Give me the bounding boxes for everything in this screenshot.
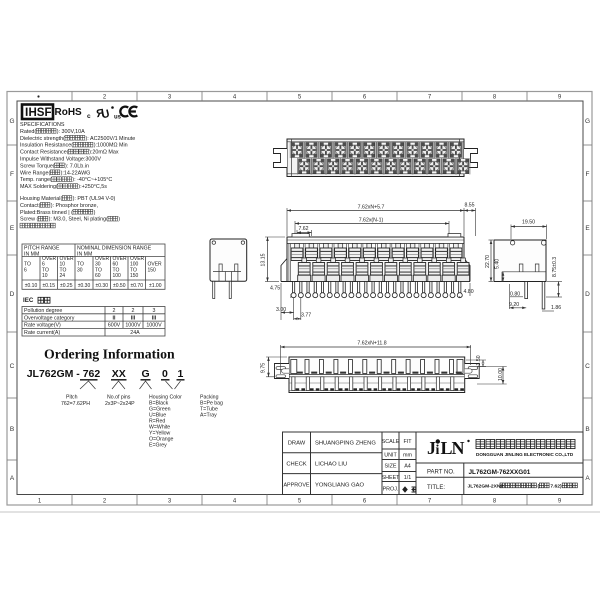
svg-text:SIZE: SIZE — [385, 464, 397, 470]
svg-text:LICHAO LIU: LICHAO LIU — [315, 462, 347, 468]
svg-text:7.62): 7.62) — [550, 484, 562, 490]
svg-text:B: B — [10, 426, 14, 433]
svg-text:Screw (: Screw ( — [20, 217, 38, 223]
svg-text:Ordering Information: Ordering Information — [44, 347, 175, 362]
svg-text:2x3P~2x24P: 2x3P~2x24P — [105, 401, 135, 407]
svg-text:9.75: 9.75 — [261, 363, 267, 373]
svg-text:HSF: HSF — [29, 107, 52, 119]
svg-text:Dielectric strength(: Dielectric strength( — [20, 136, 65, 142]
svg-text:RoHS: RoHS — [55, 107, 83, 118]
svg-text:1/1: 1/1 — [404, 475, 412, 481]
svg-text:A=Tray: A=Tray — [200, 413, 217, 419]
svg-text:1000V: 1000V — [125, 323, 141, 329]
svg-text:9.20: 9.20 — [509, 302, 519, 308]
svg-text:Insulation Resistance(: Insulation Resistance( — [20, 143, 73, 149]
svg-text:CHECK: CHECK — [286, 462, 306, 468]
svg-text:1000V: 1000V — [146, 323, 162, 329]
svg-text:0: 0 — [162, 368, 168, 380]
svg-text:60: 60 — [95, 273, 101, 279]
svg-text:24A: 24A — [130, 330, 140, 336]
svg-text:):14-22AWG: ):14-22AWG — [61, 170, 91, 176]
svg-text:TITLE:: TITLE: — [427, 485, 445, 491]
svg-text:Contact(: Contact( — [20, 203, 41, 209]
svg-text:100: 100 — [113, 273, 122, 279]
svg-text:): M3.0, Steel, Ni plating(: ): M3.0, Steel, Ni plating( — [49, 217, 109, 223]
svg-text:10.00: 10.00 — [498, 368, 504, 381]
svg-text:F: F — [10, 171, 14, 178]
svg-text:SHUANGPING ZHENG: SHUANGPING ZHENG — [315, 441, 376, 447]
svg-text:150: 150 — [130, 273, 139, 279]
svg-text:E: E — [10, 225, 15, 232]
svg-text:±0.50: ±0.50 — [113, 283, 126, 289]
svg-text:Housing Material(: Housing Material( — [20, 196, 62, 202]
svg-text:II: II — [113, 315, 116, 321]
svg-text:Temp. range(: Temp. range( — [20, 177, 52, 183]
svg-text:SCALE: SCALE — [382, 439, 400, 445]
svg-text:±0.70: ±0.70 — [131, 283, 144, 289]
svg-text:SPECIFICATIONS: SPECIFICATIONS — [20, 122, 65, 128]
svg-text:C: C — [585, 363, 590, 370]
svg-text:): -40°C~+105°C: ): -40°C~+105°C — [72, 177, 112, 183]
svg-text:±0.30: ±0.30 — [78, 283, 91, 289]
svg-text:1.86: 1.86 — [551, 305, 561, 311]
svg-text:Overvoltage category: Overvoltage category — [24, 315, 75, 321]
svg-text:N: N — [452, 438, 465, 458]
svg-text:13.15: 13.15 — [261, 253, 267, 266]
svg-text:B: B — [585, 426, 589, 433]
svg-text:6: 6 — [24, 267, 27, 273]
svg-text:Rate current(A): Rate current(A) — [24, 330, 60, 336]
svg-text:7.62x(N-1): 7.62x(N-1) — [359, 218, 384, 224]
svg-text:Screw Torque(: Screw Torque( — [20, 163, 55, 169]
svg-text:7.62: 7.62 — [298, 226, 308, 232]
svg-text:±1.00: ±1.00 — [149, 283, 162, 289]
svg-text:Contact Resistance(: Contact Resistance( — [20, 150, 69, 156]
svg-text:): ) — [118, 217, 120, 223]
svg-text:10: 10 — [42, 273, 48, 279]
svg-text:4.75: 4.75 — [270, 286, 280, 292]
svg-text:JL762GM-2XNP: JL762GM-2XNP — [468, 484, 505, 490]
svg-text:A4: A4 — [404, 464, 411, 470]
svg-text:XX: XX — [112, 368, 126, 380]
svg-text:Rated(: Rated( — [20, 129, 36, 135]
svg-text:G: G — [9, 118, 14, 125]
svg-text:762=7.62PH: 762=7.62PH — [61, 401, 90, 407]
svg-text:19.50: 19.50 — [522, 220, 535, 226]
svg-text:2: 2 — [132, 308, 135, 314]
svg-text:Pollution degree: Pollution degree — [24, 308, 62, 314]
svg-text:IN MM: IN MM — [77, 252, 92, 258]
svg-text:):20mΩ Max: ):20mΩ Max — [89, 150, 119, 156]
svg-text:SHEET: SHEET — [382, 475, 401, 481]
svg-text:PART NO.: PART NO. — [427, 470, 455, 476]
svg-text:D: D — [585, 291, 590, 298]
svg-text:7.62xN+5.7: 7.62xN+5.7 — [358, 205, 385, 211]
svg-text:2: 2 — [113, 308, 116, 314]
svg-text:PROJ.: PROJ. — [383, 487, 399, 493]
svg-text:600V: 600V — [108, 323, 121, 329]
svg-text:±0.15: ±0.15 — [43, 283, 56, 289]
svg-text:Plated:Brass tinned | (: Plated:Brass tinned | ( — [20, 210, 73, 216]
svg-text:Impulse Withstand Voltage:3000: Impulse Withstand Voltage:3000V — [20, 157, 101, 163]
svg-text:):+250°C,5s: ):+250°C,5s — [78, 184, 107, 190]
svg-text:±0.10: ±0.10 — [25, 283, 38, 289]
svg-text:E=Grey: E=Grey — [149, 443, 167, 449]
svg-text:): PBT (UL94 V-0): ): PBT (UL94 V-0) — [73, 196, 116, 202]
svg-text:1: 1 — [178, 368, 184, 380]
svg-text:): AC2500V/1 Minute: ): AC2500V/1 Minute — [86, 136, 136, 142]
svg-text:Wire Range(: Wire Range( — [20, 170, 50, 176]
svg-text:7.62xN+11.8: 7.62xN+11.8 — [357, 341, 386, 347]
svg-text:FIT: FIT — [403, 439, 412, 445]
svg-text:DONGGUAN JINLING ELECTRONIC CO: DONGGUAN JINLING ELECTRONIC CO.,LTD — [476, 452, 574, 457]
svg-text:3.77: 3.77 — [301, 313, 311, 319]
svg-text:): ) — [94, 210, 96, 216]
svg-text:): 7.0Lb.in: ): 7.0Lb.in — [65, 163, 89, 169]
svg-text:III: III — [131, 315, 136, 321]
svg-text:8.55: 8.55 — [464, 203, 474, 209]
svg-text:3.50: 3.50 — [476, 355, 482, 365]
svg-text:IN MM: IN MM — [24, 252, 39, 258]
svg-text:±0.30: ±0.30 — [96, 283, 109, 289]
svg-text:i: i — [436, 443, 440, 458]
svg-text:us: us — [114, 115, 122, 121]
svg-text:8.75±0.3: 8.75±0.3 — [552, 257, 558, 277]
svg-text:mm: mm — [403, 453, 412, 459]
svg-text:5.40: 5.40 — [495, 259, 501, 269]
svg-text:Rate voltage(V): Rate voltage(V) — [24, 323, 61, 329]
svg-text:D: D — [10, 291, 15, 298]
svg-text:APPROVE: APPROVE — [283, 483, 309, 489]
svg-text:4.80: 4.80 — [464, 289, 474, 295]
svg-text:C: C — [10, 363, 15, 370]
svg-text:150: 150 — [148, 267, 157, 273]
svg-text:30: 30 — [77, 267, 83, 273]
svg-text:G: G — [585, 118, 590, 125]
svg-text:No.of pins: No.of pins — [107, 395, 131, 401]
svg-text:DRAW: DRAW — [288, 441, 306, 447]
svg-text:F: F — [586, 171, 590, 178]
svg-text:c: c — [87, 113, 91, 120]
svg-text:MAX Soldering(: MAX Soldering( — [20, 184, 58, 190]
svg-text:24: 24 — [60, 273, 66, 279]
svg-text:22.70: 22.70 — [485, 255, 491, 268]
svg-text:):1000MΩ Min: ):1000MΩ Min — [94, 143, 128, 149]
svg-text:UNIT: UNIT — [384, 453, 397, 459]
svg-text:): 300V,10A: ): 300V,10A — [57, 129, 85, 135]
svg-text:): Phosphor bronze,: ): Phosphor bronze, — [51, 203, 99, 209]
svg-text:A: A — [585, 475, 590, 482]
svg-text:YONGLIANG GAO: YONGLIANG GAO — [315, 483, 364, 489]
svg-text:G: G — [142, 368, 150, 380]
svg-text:3: 3 — [153, 308, 156, 314]
svg-text:JL762GM - 762: JL762GM - 762 — [27, 368, 101, 380]
svg-text:IEC: IEC — [23, 297, 34, 304]
svg-text:A: A — [10, 475, 15, 482]
svg-text:JL762GM-762XXG01: JL762GM-762XXG01 — [469, 469, 531, 476]
svg-text:Pitch: Pitch — [66, 395, 78, 401]
svg-text:E: E — [585, 225, 590, 232]
svg-text:III: III — [152, 315, 157, 321]
svg-text:±0.25: ±0.25 — [60, 283, 73, 289]
